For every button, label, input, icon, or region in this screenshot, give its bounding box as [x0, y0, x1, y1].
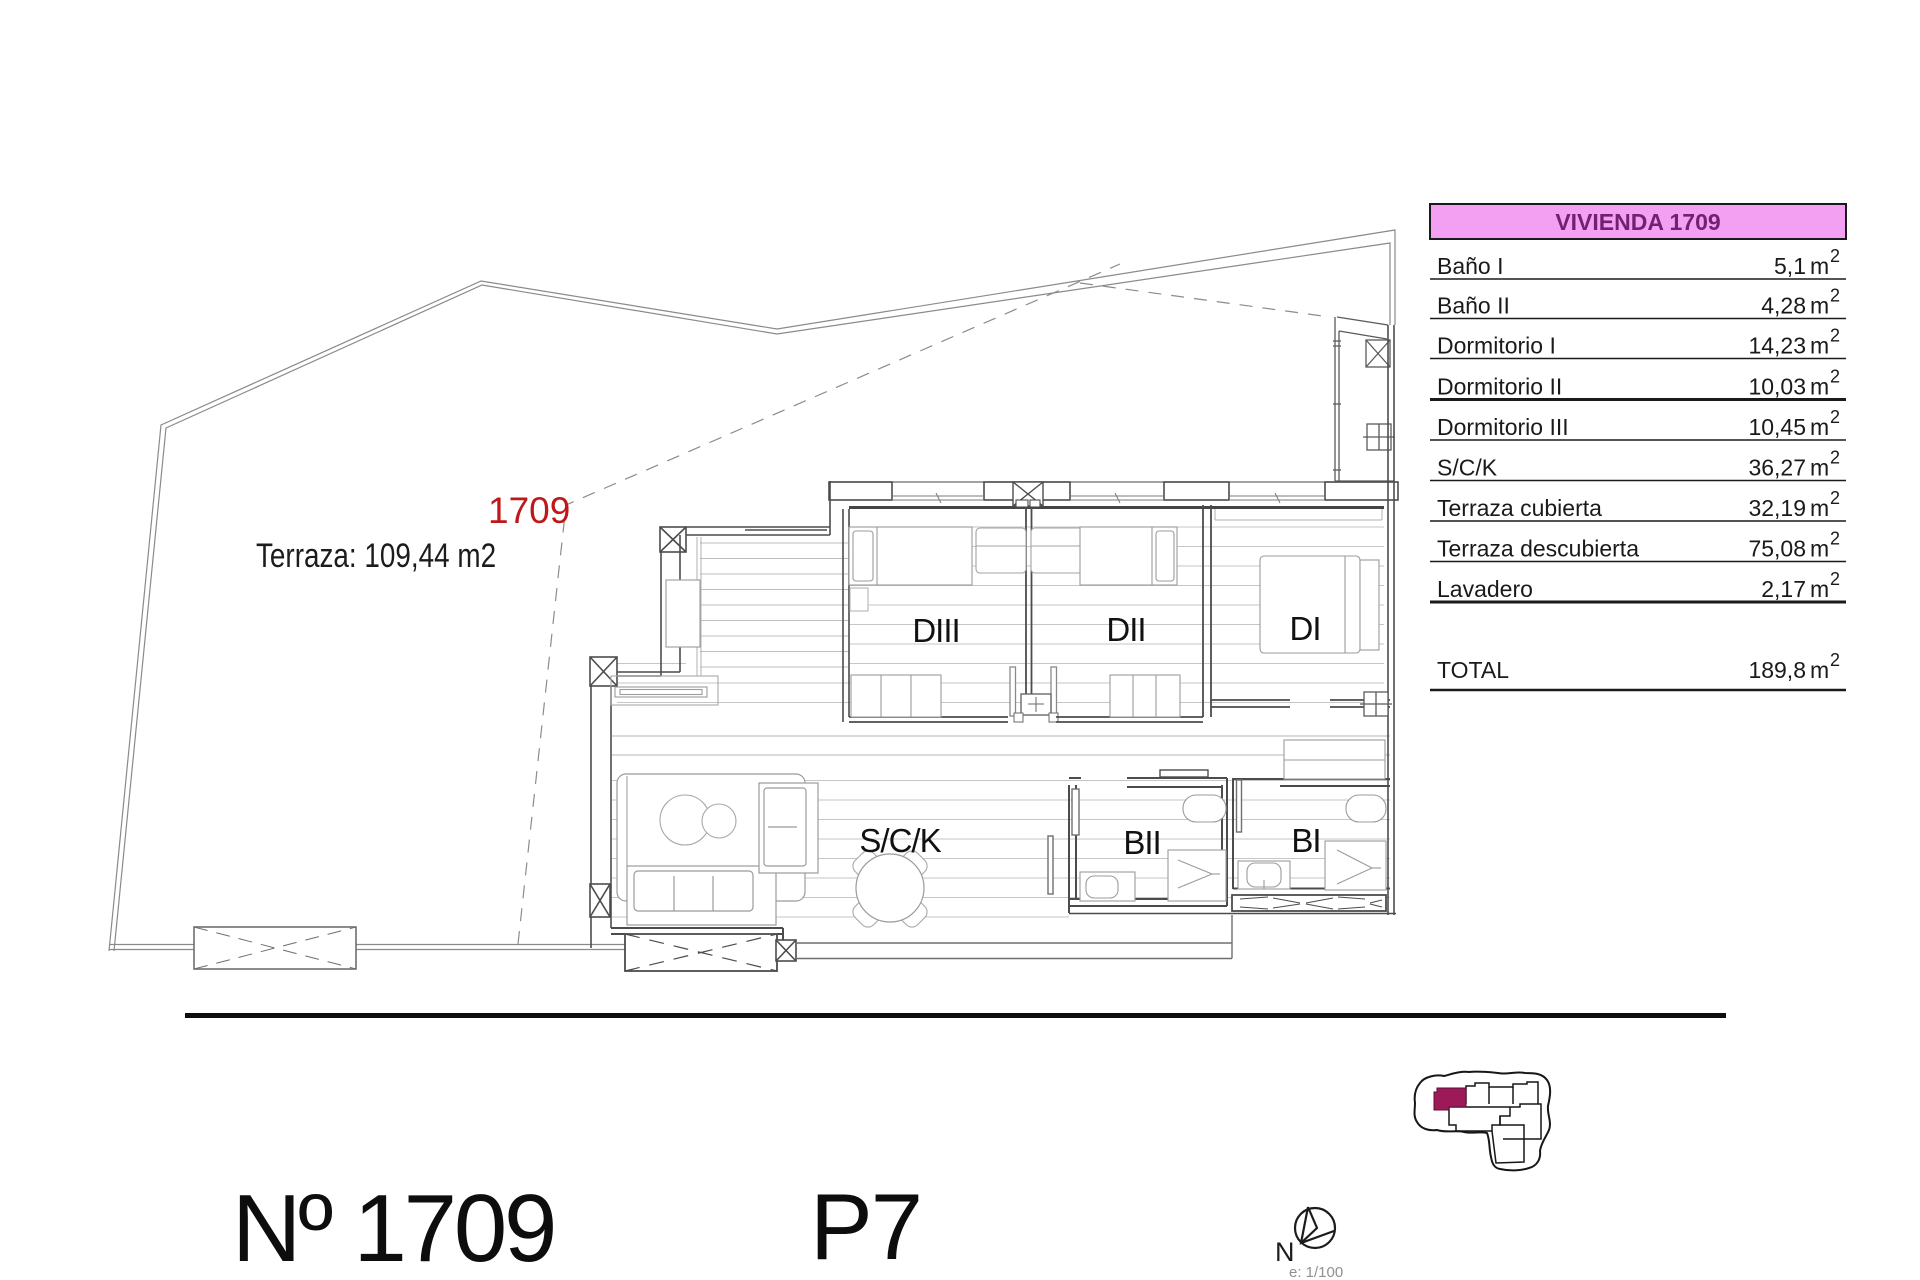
- svg-text:m: m: [1810, 333, 1829, 359]
- svg-text:P7: P7: [810, 1174, 921, 1279]
- svg-text:m: m: [1810, 455, 1829, 481]
- svg-text:e: 1/100: e: 1/100: [1289, 1264, 1343, 1280]
- svg-text:VIVIENDA 1709: VIVIENDA 1709: [1555, 209, 1720, 235]
- svg-text:S/C/K: S/C/K: [859, 822, 941, 859]
- svg-text:S/C/K: S/C/K: [1437, 455, 1498, 481]
- svg-text:2: 2: [1830, 529, 1840, 549]
- svg-text:189,8: 189,8: [1748, 657, 1806, 683]
- svg-text:m: m: [1810, 495, 1829, 521]
- svg-text:2,17: 2,17: [1761, 576, 1806, 602]
- svg-text:BII: BII: [1123, 824, 1160, 861]
- svg-text:5,1: 5,1: [1774, 253, 1806, 279]
- svg-text:Baño I: Baño I: [1437, 253, 1504, 279]
- svg-text:2: 2: [1830, 448, 1840, 468]
- svg-text:TOTAL: TOTAL: [1437, 657, 1509, 683]
- svg-text:2: 2: [1830, 650, 1840, 670]
- svg-text:2: 2: [1830, 246, 1840, 266]
- svg-text:10,45: 10,45: [1748, 414, 1806, 440]
- svg-text:Dormitorio I: Dormitorio I: [1437, 333, 1556, 359]
- svg-text:m: m: [1810, 414, 1829, 440]
- svg-text:DI: DI: [1290, 610, 1321, 647]
- svg-text:m: m: [1810, 576, 1829, 602]
- svg-text:Baño II: Baño II: [1437, 293, 1510, 319]
- svg-text:DII: DII: [1106, 611, 1145, 648]
- svg-text:2: 2: [1830, 286, 1840, 306]
- svg-text:m: m: [1810, 293, 1829, 319]
- svg-text:N: N: [1275, 1237, 1295, 1267]
- svg-text:Terraza descubierta: Terraza descubierta: [1437, 536, 1639, 562]
- svg-text:2: 2: [1830, 407, 1840, 427]
- svg-text:DIII: DIII: [912, 612, 959, 649]
- svg-text:2: 2: [1830, 488, 1840, 508]
- svg-text:Lavadero: Lavadero: [1437, 576, 1533, 602]
- svg-text:Terraza: 109,44 m2: Terraza: 109,44 m2: [256, 536, 496, 574]
- svg-text:m: m: [1810, 657, 1829, 683]
- svg-text:m: m: [1810, 536, 1829, 562]
- svg-text:1709: 1709: [488, 490, 570, 531]
- svg-text:Dormitorio III: Dormitorio III: [1437, 414, 1569, 440]
- svg-text:Dormitorio II: Dormitorio II: [1437, 374, 1562, 400]
- svg-text:32,19: 32,19: [1748, 495, 1806, 521]
- svg-text:2: 2: [1830, 367, 1840, 387]
- svg-text:75,08: 75,08: [1748, 536, 1806, 562]
- svg-text:Terraza cubierta: Terraza cubierta: [1437, 495, 1602, 521]
- svg-text:10,03: 10,03: [1748, 374, 1806, 400]
- svg-text:m: m: [1810, 253, 1829, 279]
- svg-text:BI: BI: [1291, 822, 1320, 859]
- svg-text:4,28: 4,28: [1761, 293, 1806, 319]
- svg-text:Nº 1709: Nº 1709: [232, 1175, 554, 1280]
- svg-text:14,23: 14,23: [1748, 333, 1806, 359]
- svg-text:36,27: 36,27: [1748, 455, 1806, 481]
- svg-text:2: 2: [1830, 326, 1840, 346]
- svg-text:m: m: [1810, 374, 1829, 400]
- svg-text:2: 2: [1830, 569, 1840, 589]
